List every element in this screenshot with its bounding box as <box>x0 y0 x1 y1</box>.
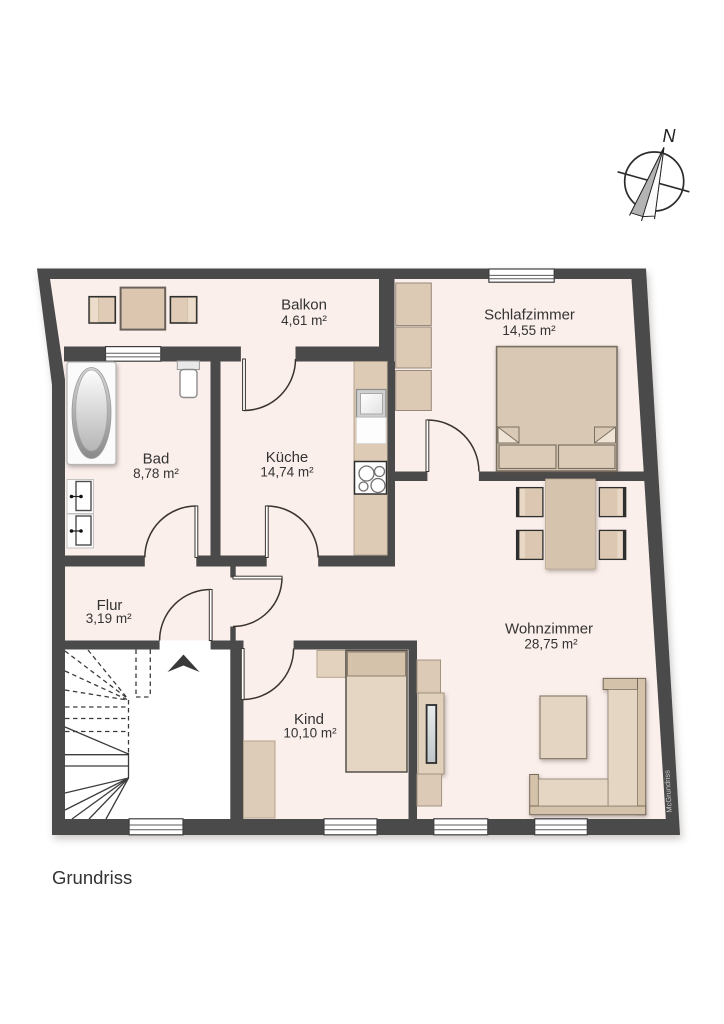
svg-text:Bad: Bad <box>143 451 170 468</box>
svg-text:8,78 m²: 8,78 m² <box>133 466 179 481</box>
svg-text:4,61 m²: 4,61 m² <box>281 313 327 328</box>
svg-text:14,74 m²: 14,74 m² <box>260 465 314 480</box>
svg-text:Küche: Küche <box>266 449 309 466</box>
svg-text:14,55 m²: 14,55 m² <box>502 323 556 338</box>
svg-text:28,75 m²: 28,75 m² <box>524 637 578 652</box>
svg-text:N: N <box>663 126 677 146</box>
svg-text:3,19 m²: 3,19 m² <box>86 611 132 626</box>
svg-text:Grundriss: Grundriss <box>52 867 132 888</box>
svg-text:Wohnzimmer: Wohnzimmer <box>505 621 593 638</box>
svg-text:Balkon: Balkon <box>281 296 327 313</box>
svg-text:10,10 m²: 10,10 m² <box>283 726 337 741</box>
svg-text:Schlafzimmer: Schlafzimmer <box>484 307 575 324</box>
